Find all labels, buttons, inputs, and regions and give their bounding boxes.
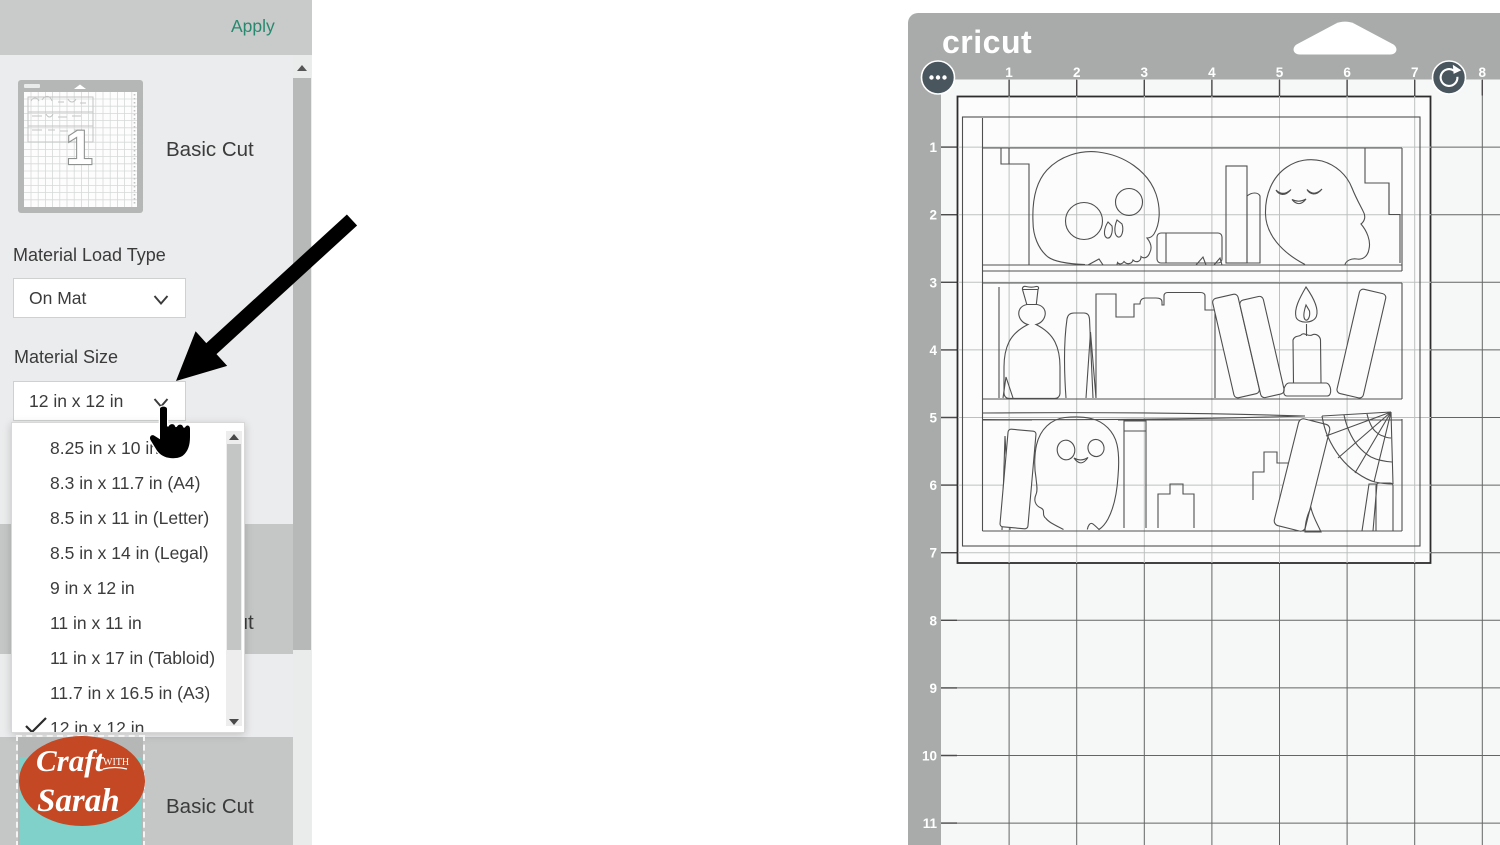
svg-text:Sarah: Sarah (37, 783, 120, 819)
svg-text:WITH: WITH (103, 757, 129, 768)
svg-text:6: 6 (1343, 65, 1351, 80)
svg-text:7: 7 (1411, 65, 1419, 80)
svg-text:cricut: cricut (942, 24, 1032, 60)
svg-text:10: 10 (922, 749, 937, 764)
svg-text:Craft: Craft (36, 743, 105, 778)
svg-text:4: 4 (1208, 65, 1216, 80)
svg-text:6: 6 (929, 478, 937, 493)
svg-text:8: 8 (1479, 65, 1487, 80)
svg-text:11: 11 (923, 816, 938, 831)
svg-text:8: 8 (929, 613, 937, 628)
svg-text:1: 1 (1005, 65, 1013, 80)
svg-text:5: 5 (929, 411, 937, 426)
svg-text:5: 5 (1276, 65, 1284, 80)
svg-text:2: 2 (1073, 65, 1081, 80)
svg-text:9: 9 (929, 681, 937, 696)
svg-text:2: 2 (929, 208, 937, 223)
svg-text:1: 1 (929, 140, 937, 155)
svg-text:3: 3 (1141, 65, 1149, 80)
svg-text:7: 7 (929, 546, 937, 561)
svg-text:4: 4 (929, 343, 937, 358)
svg-text:3: 3 (929, 275, 937, 290)
